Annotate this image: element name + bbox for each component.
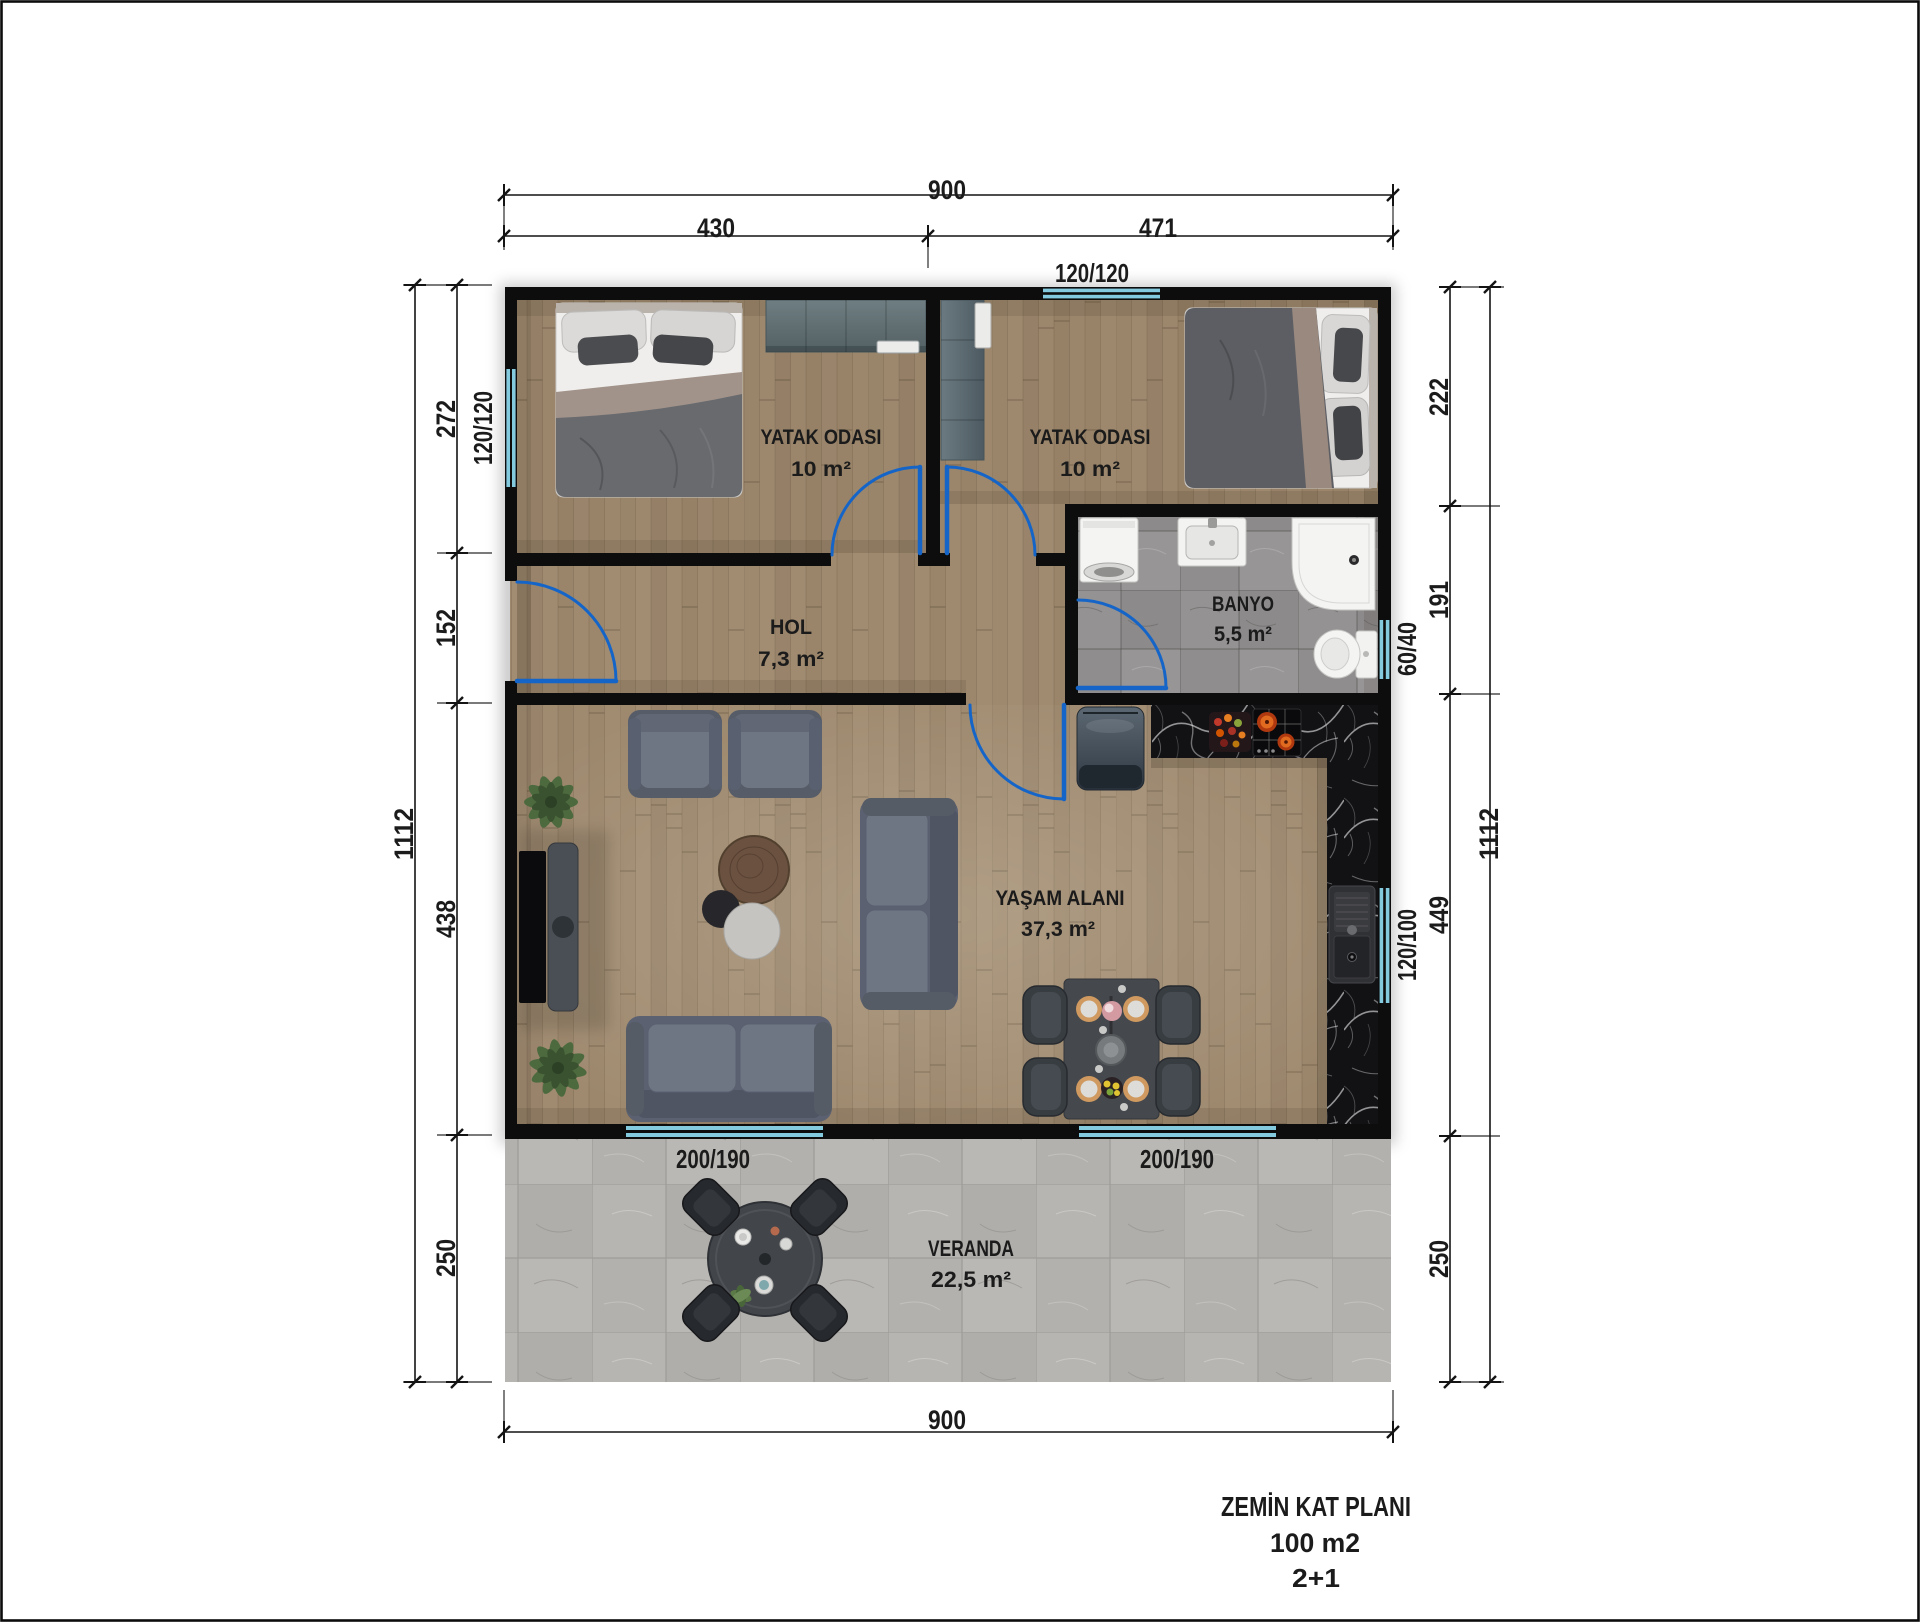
svg-text:200/190: 200/190 — [1140, 1144, 1214, 1174]
svg-text:10 m²: 10 m² — [791, 458, 851, 481]
svg-text:YATAK ODASI: YATAK ODASI — [761, 426, 882, 449]
svg-text:120/100: 120/100 — [1392, 909, 1422, 981]
svg-text:5,5 m²: 5,5 m² — [1214, 623, 1272, 646]
svg-text:222: 222 — [1424, 378, 1454, 416]
svg-text:BANYO: BANYO — [1212, 593, 1274, 616]
svg-text:1112: 1112 — [389, 808, 419, 860]
svg-text:471: 471 — [1139, 213, 1177, 243]
svg-text:120/120: 120/120 — [1055, 258, 1129, 288]
svg-text:10 m²: 10 m² — [1060, 458, 1120, 481]
svg-text:HOL: HOL — [770, 616, 812, 639]
svg-text:120/120: 120/120 — [468, 391, 498, 465]
svg-text:60/40: 60/40 — [1392, 622, 1422, 676]
svg-text:ZEMİN KAT PLANI: ZEMİN KAT PLANI — [1221, 1491, 1411, 1522]
svg-text:100 m2: 100 m2 — [1270, 1528, 1360, 1558]
svg-text:7,3 m²: 7,3 m² — [758, 648, 824, 671]
svg-text:250: 250 — [431, 1239, 461, 1277]
svg-text:2+1: 2+1 — [1292, 1563, 1340, 1593]
svg-text:1112: 1112 — [1474, 808, 1504, 860]
svg-text:449: 449 — [1424, 896, 1454, 934]
svg-text:YAŞAM ALANI: YAŞAM ALANI — [996, 887, 1125, 910]
svg-text:250: 250 — [1424, 1240, 1454, 1278]
svg-text:900: 900 — [928, 1405, 966, 1435]
svg-text:22,5 m²: 22,5 m² — [931, 1267, 1011, 1292]
svg-text:191: 191 — [1424, 581, 1454, 619]
svg-text:YATAK ODASI: YATAK ODASI — [1030, 426, 1151, 449]
svg-text:438: 438 — [431, 900, 461, 938]
svg-text:430: 430 — [697, 213, 735, 243]
svg-text:VERANDA: VERANDA — [928, 1236, 1014, 1261]
svg-text:37,3 m²: 37,3 m² — [1021, 918, 1095, 941]
svg-text:152: 152 — [431, 609, 461, 647]
svg-text:200/190: 200/190 — [676, 1144, 750, 1174]
svg-text:900: 900 — [928, 175, 966, 205]
svg-text:272: 272 — [431, 400, 461, 438]
